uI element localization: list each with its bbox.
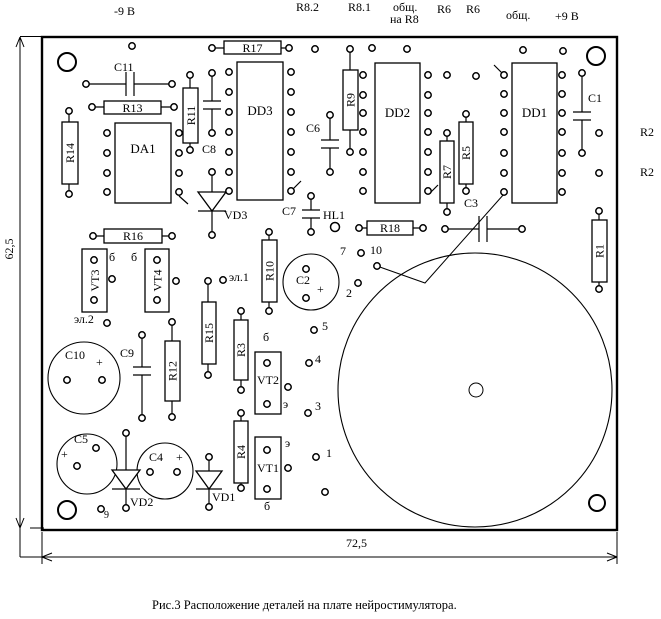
- label-C5: C5: [74, 433, 88, 445]
- net-label-r81: R8.1: [348, 1, 371, 13]
- diode-VD3: [198, 172, 226, 235]
- net-label-common: общ.: [506, 9, 530, 21]
- polarity-plus-C2: +: [317, 283, 324, 295]
- label-R1: R1: [569, 244, 631, 259]
- label-DA1: DA1: [115, 138, 171, 158]
- label-DD2: DD2: [375, 102, 420, 122]
- label-C8: C8: [202, 143, 216, 155]
- led-HL1-pad: [331, 223, 340, 232]
- pad-label-3: 3: [315, 400, 321, 412]
- electrode-disc: [338, 253, 612, 527]
- pad-label-5: 5: [322, 320, 328, 332]
- label-C7: C7: [282, 205, 296, 217]
- pad-label-1: 1: [326, 447, 332, 459]
- figure-caption: Рис.3 Расположение деталей на плате нейр…: [152, 599, 457, 612]
- capacitor-C4-body: [137, 443, 193, 499]
- label-C2: C2: [296, 274, 310, 286]
- pad-label-4: 4: [315, 353, 321, 365]
- label-R12: R12: [143, 364, 203, 379]
- chip-DD3-body: [237, 62, 283, 200]
- label-VT1: VT1: [255, 460, 281, 476]
- chip-DD2-body: [375, 63, 420, 203]
- label-R18: R18: [367, 221, 413, 235]
- label-C6: C6: [306, 122, 320, 134]
- label-C3: C3: [464, 197, 478, 209]
- chip-DD1-body: [512, 63, 557, 203]
- disc-center-hole: [469, 383, 483, 397]
- label-C4: C4: [149, 451, 163, 463]
- label-R16: R16: [104, 229, 162, 243]
- dimension-width-label: 72,5: [346, 537, 367, 549]
- label-VD3: VD3: [224, 209, 247, 221]
- pad-label-9: 9: [104, 511, 109, 521]
- pin-label-vt2-base: б: [263, 331, 269, 343]
- label-R11: R11: [163, 108, 218, 123]
- pin-label-vt3-base: б: [109, 251, 115, 263]
- pad-label-10: 10: [370, 244, 382, 256]
- capacitor-C2-body: [283, 254, 339, 310]
- label-C11: C11: [114, 61, 134, 73]
- supply-label-minus9v: -9 В: [114, 5, 135, 17]
- label-C10: C10: [65, 349, 85, 361]
- label-R9: R9: [321, 93, 381, 108]
- pin-label-vt4-base: б: [131, 251, 137, 263]
- label-R13: R13: [104, 101, 161, 114]
- pin-label-vt1-emitter: э: [285, 437, 290, 449]
- label-R5: R5: [435, 146, 497, 160]
- chip-DA1-body: [115, 123, 171, 203]
- label-R4: R4: [210, 445, 272, 459]
- label-VD1: VD1: [212, 491, 235, 503]
- net-label-r2-b: R2: [640, 166, 654, 178]
- label-DD3: DD3: [237, 100, 283, 120]
- label-DD1: DD1: [512, 102, 557, 122]
- label-R14: R14: [39, 145, 101, 161]
- pcb-layout-figure: -9 В R8.2 R8.1 общ. на R8 R6 R6 общ. +9 …: [0, 0, 661, 619]
- polarity-plus-C5: +: [61, 448, 68, 460]
- label-HL1: HL1: [323, 209, 345, 221]
- jumper-wire-line: [377, 194, 504, 283]
- supply-label-plus9v: +9 В: [555, 10, 579, 22]
- label-VT2: VT2: [255, 372, 281, 388]
- dimension-height-label: 62,5: [2, 234, 16, 264]
- polarity-plus-C10: +: [96, 356, 103, 368]
- net-label-r2-a: R2: [640, 126, 654, 138]
- net-label-r6-b: R6: [466, 3, 480, 15]
- label-R17: R17: [224, 41, 281, 54]
- net-label-common-r8-line2: на R8: [390, 13, 419, 25]
- pin-label-vt2-emitter: э: [283, 398, 288, 410]
- pin-label-vt1-base: б: [264, 500, 270, 512]
- label-C9: C9: [120, 347, 134, 359]
- label-VT3: VT3: [63, 268, 126, 293]
- pad-label-2: 2: [346, 287, 352, 299]
- label-VT4: VT4: [126, 269, 189, 293]
- pad-label-7: 7: [340, 245, 346, 257]
- label-R3: R3: [211, 343, 271, 357]
- label-R15: R15: [178, 326, 240, 340]
- net-label-r82: R8.2: [296, 1, 319, 13]
- net-label-r6-a: R6: [437, 3, 451, 15]
- label-C1: C1: [588, 92, 602, 104]
- label-VD2: VD2: [130, 496, 153, 508]
- pad-label-el1: эл.1: [229, 271, 249, 283]
- label-R7: R7: [416, 165, 478, 179]
- polarity-plus-C4: +: [176, 451, 183, 463]
- pad-label-el2: эл.2: [74, 313, 94, 325]
